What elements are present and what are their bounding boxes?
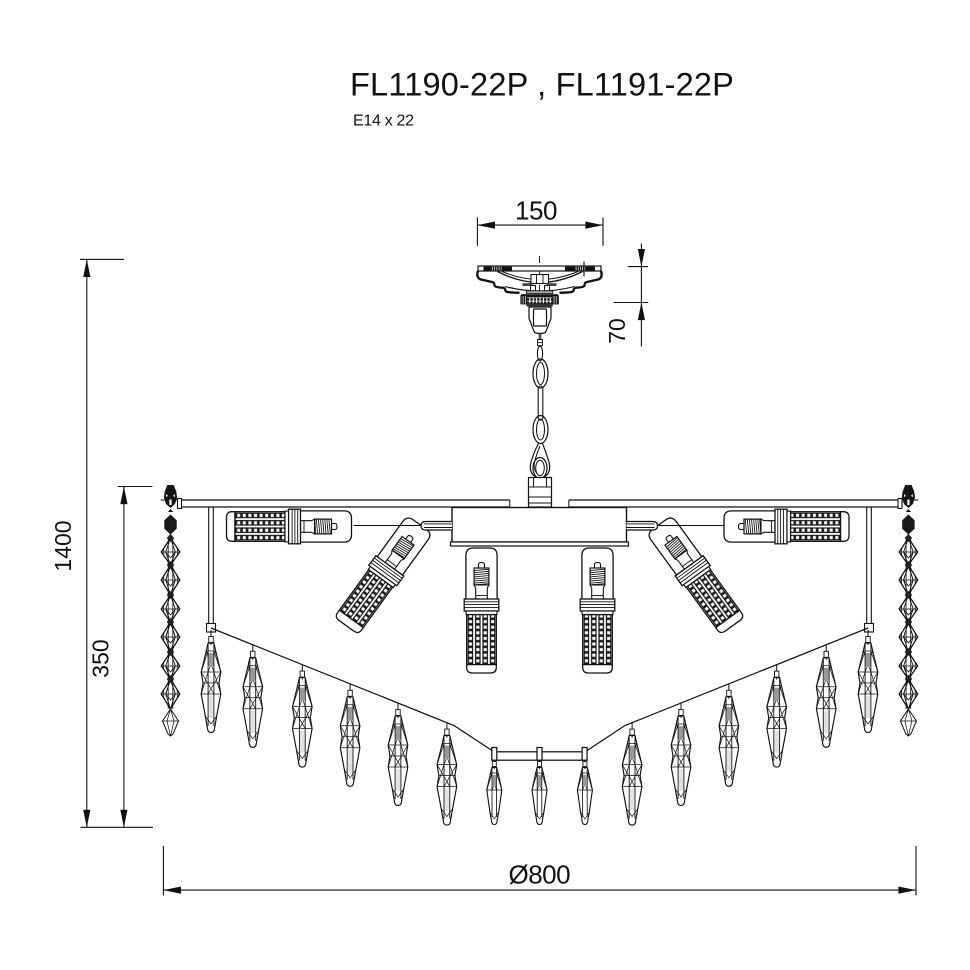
svg-text:1400: 1400 — [50, 520, 76, 571]
svg-text:Ø800: Ø800 — [508, 860, 570, 890]
svg-text:70: 70 — [604, 318, 630, 344]
svg-text:350: 350 — [88, 639, 114, 677]
svg-text:FL1190-22P , FL1191-22P: FL1190-22P , FL1191-22P — [350, 67, 734, 103]
svg-text:E14 x 22: E14 x 22 — [353, 113, 414, 130]
svg-text:150: 150 — [515, 196, 557, 226]
